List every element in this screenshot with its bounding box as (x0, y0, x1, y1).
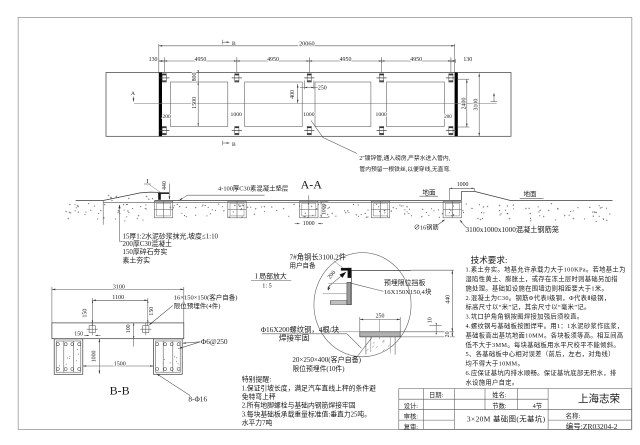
svg-text:150: 150 (149, 307, 155, 316)
svg-text:上海志荣: 上海志荣 (578, 392, 620, 405)
svg-text:B-B: B-B (110, 384, 130, 398)
svg-text:地面: 地面 (524, 189, 538, 198)
svg-text:均不得大于10MM。: 均不得大于10MM。 (466, 359, 525, 368)
svg-text:4950: 4950 (267, 57, 279, 63)
svg-text:20: 20 (445, 331, 451, 337)
svg-text:管内预留一根铁丝,以便穿线,无直弯.: 管内预留一根铁丝,以便穿线,无直弯. (359, 165, 451, 173)
svg-text:3.每块基础板承载重量标准值:垂直力25吨。: 3.每块基础板承载重量标准值:垂直力25吨。 (242, 409, 371, 418)
svg-text:1000: 1000 (376, 112, 388, 118)
svg-text:200: 200 (444, 115, 452, 120)
svg-text:B: B (232, 142, 236, 148)
svg-text:预埋限位挡板: 预埋限位挡板 (384, 278, 425, 287)
svg-text:A-A: A-A (301, 177, 323, 191)
svg-text:4950: 4950 (195, 57, 207, 63)
svg-text:200: 200 (327, 270, 337, 281)
svg-text:10: 10 (428, 317, 434, 323)
svg-text:130: 130 (149, 57, 158, 63)
svg-text:施处理。基础如设施在围墙边则相距要大于1米。: 施处理。基础如设施在围墙边则相距要大于1米。 (466, 283, 609, 292)
svg-text:I 局部放大: I 局部放大 (255, 272, 287, 281)
svg-text:1000: 1000 (231, 112, 243, 118)
svg-text:焊接牢固: 焊接牢固 (279, 332, 309, 342)
svg-text:1500: 1500 (114, 361, 126, 367)
svg-text:1000: 1000 (457, 182, 469, 188)
svg-text:3100: 3100 (474, 99, 480, 111)
svg-text:限位预埋件(10件): 限位预埋件(10件) (292, 364, 344, 373)
svg-text:15厚1:2水泥砂浆抹光,坡度≤1:10: 15厚1:2水泥砂浆抹光,坡度≤1:10 (123, 231, 219, 240)
svg-text:1500: 1500 (192, 97, 198, 109)
svg-text:节数:: 节数: (492, 401, 507, 410)
svg-text:6.应保证基坑内排水顺畅。保证基坑底部无积水，排: 6.应保证基坑内排水顺畅。保证基坑底部无积水，排 (466, 368, 618, 377)
svg-text:姓名:: 姓名: (492, 390, 507, 399)
svg-text:2.所有地脚螺栓与基础内钢筋焊接牢固: 2.所有地脚螺栓与基础内钢筋焊接牢固 (242, 401, 356, 410)
svg-text:特别提醒:: 特别提醒: (242, 374, 272, 383)
svg-text:编号:ZR03204-2: 编号:ZR03204-2 (566, 421, 618, 431)
svg-text:Φ6@250: Φ6@250 (201, 337, 228, 346)
svg-text:440: 440 (445, 295, 451, 304)
svg-text:150: 150 (83, 309, 89, 318)
svg-text:水平力7吨: 水平力7吨 (242, 418, 273, 427)
svg-text:3×20M 基础图(无基坑): 3×20M 基础图(无基坑) (467, 415, 546, 424)
svg-text:名称:: 名称: (566, 411, 581, 420)
svg-text:1000: 1000 (92, 350, 98, 362)
svg-text:1000: 1000 (303, 112, 315, 118)
svg-text:地面: 地面 (423, 188, 437, 197)
svg-text:3100x1000x1000混凝土钢筋笼: 3100x1000x1000混凝土钢筋笼 (466, 225, 559, 234)
svg-text:限位预埋件(4件): 限位预埋件(4件) (174, 301, 221, 310)
svg-text:4节: 4节 (533, 402, 542, 410)
svg-text:1000: 1000 (322, 203, 328, 215)
svg-text:250: 250 (376, 314, 385, 320)
svg-text:20060: 20060 (299, 40, 314, 47)
svg-text:4.螺纹钢与基础板按图焊牢。用1：1水泥砂浆作底浆，: 4.螺纹钢与基础板按图焊牢。用1：1水泥砂浆作底浆， (466, 321, 624, 330)
svg-text:20×250×400(客户自备): 20×250×400(客户自备) (292, 355, 361, 364)
svg-text:技术要求:: 技术要求: (471, 254, 508, 265)
svg-text:16X150X150,4块: 16X150X150,4块 (384, 287, 432, 296)
svg-text:800: 800 (192, 73, 198, 82)
svg-text:150厚碎石夯实: 150厚碎石夯实 (123, 247, 168, 256)
svg-text:1000: 1000 (303, 221, 315, 227)
svg-text:水设施用户自定。: 水设施用户自定。 (466, 377, 519, 386)
svg-text:100: 100 (126, 324, 132, 333)
svg-text:4950: 4950 (340, 57, 352, 63)
svg-text:1100: 1100 (112, 295, 124, 301)
svg-text:130: 130 (463, 57, 472, 63)
svg-text:基础板高出基坑地面10MM。各块板须等高。相互间高: 基础板高出基坑地面10MM。各块板须等高。相互间高 (466, 330, 624, 339)
svg-text:2400: 2400 (461, 98, 467, 110)
svg-text:8-Φ16: 8-Φ16 (188, 394, 207, 403)
svg-text:440: 440 (162, 181, 168, 190)
svg-text:设计:: 设计: (404, 401, 419, 410)
svg-text:5、各基础板中心相对误差（前后，左右，对角线）: 5、各基础板中心相对误差（前后，左右，对角线） (466, 349, 615, 358)
svg-text:3.坑口护角角钢按图焊接加强后须校直。: 3.坑口护角角钢按图焊接加强后须校直。 (466, 312, 584, 321)
svg-text:湿陷性黄土、膨胀土，或存在冻土层时则基础另加措: 湿陷性黄土、膨胀土，或存在冻土层时则基础另加措 (466, 274, 619, 283)
svg-text:审核:: 审核: (404, 411, 419, 420)
svg-text:免特弯上秤: 免特弯上秤 (242, 392, 276, 401)
svg-text:2"镀锌管,通入磅房,严禁水进入管内,: 2"镀锌管,通入磅房,严禁水进入管内, (359, 154, 450, 162)
svg-text:150: 150 (74, 331, 83, 337)
svg-text:200厚C30混凝土: 200厚C30混凝土 (123, 239, 172, 248)
svg-text:A: A (131, 91, 135, 97)
svg-text:7#角钢长3100,2件: 7#角钢长3100,2件 (290, 253, 347, 262)
svg-text:4-100厚C30素混凝土垫层: 4-100厚C30素混凝土垫层 (218, 183, 289, 192)
svg-text:复审:: 复审: (404, 422, 419, 431)
svg-text:1.素土夯实。地基允许承载力大于100KPa。若地基土为: 1.素土夯实。地基允许承载力大于100KPa。若地基土为 (466, 265, 626, 274)
svg-text:3100: 3100 (113, 284, 125, 290)
svg-text:250: 250 (318, 85, 327, 91)
svg-text:低不大于3MM。每块基础板用水平尺校平不能倾斜。: 低不大于3MM。每块基础板用水平尺校平不能倾斜。 (466, 340, 621, 349)
svg-text:1.保证引坡长度，满足汽车直线上秤的条件避: 1.保证引坡长度，满足汽车直线上秤的条件避 (242, 383, 376, 392)
svg-text:400: 400 (290, 90, 296, 99)
svg-text:日期:: 日期: (429, 391, 444, 399)
svg-text:用户自备: 用户自备 (290, 261, 317, 270)
svg-text:1: 5: 1: 5 (262, 283, 271, 290)
svg-text:素土夯实: 素土夯实 (123, 255, 151, 264)
svg-text:2.混凝土为C30。钢筋Φ代表Ⅰ级钢，Φ代表Ⅱ级钢，: 2.混凝土为C30。钢筋Φ代表Ⅰ级钢，Φ代表Ⅱ级钢， (466, 293, 611, 302)
svg-text:200: 200 (162, 114, 171, 120)
svg-text:4950: 4950 (410, 57, 422, 63)
svg-text:16×150×150(客户自备): 16×150×150(客户自备) (174, 292, 238, 301)
svg-text:标高尺寸以“米”记，其余尺寸以“毫米”记。: 标高尺寸以“米”记，其余尺寸以“毫米”记。 (466, 302, 591, 311)
svg-text:∅16钢筋: ∅16钢筋 (414, 224, 439, 232)
